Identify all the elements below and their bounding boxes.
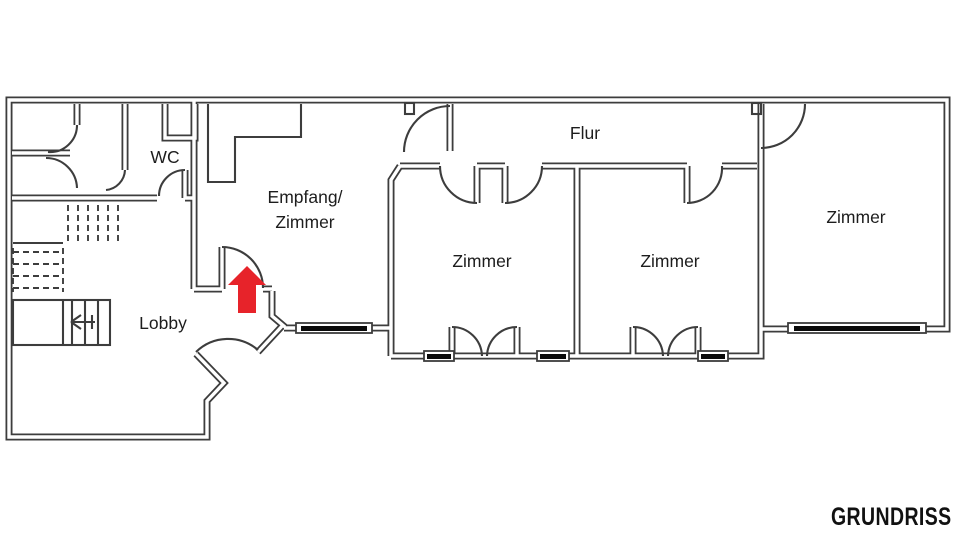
window bbox=[424, 351, 454, 361]
room-label-wc: WC bbox=[150, 147, 179, 167]
window bbox=[537, 351, 569, 361]
window bbox=[296, 323, 372, 333]
door-arc bbox=[687, 166, 722, 203]
room-label-empfang-line2: Zimmer bbox=[275, 212, 334, 232]
door-arc bbox=[106, 170, 125, 190]
stair-direction-arrow bbox=[71, 315, 95, 329]
window bbox=[788, 323, 926, 333]
door-arc bbox=[505, 166, 542, 203]
door-arc bbox=[440, 166, 477, 203]
door-arc bbox=[46, 158, 77, 188]
french-door-arc bbox=[668, 327, 698, 356]
door-arc bbox=[48, 125, 77, 152]
staircase bbox=[13, 300, 110, 345]
entrance-door-arc bbox=[196, 339, 258, 352]
dashed-stair-outline-layer bbox=[13, 205, 118, 292]
door-arc bbox=[404, 106, 450, 152]
room-label-zimmer-middle: Zimmer bbox=[640, 251, 699, 271]
room-label-empfang-line1: Empfang/ bbox=[268, 187, 343, 207]
window bbox=[698, 351, 728, 361]
door-jamb-notch bbox=[405, 103, 414, 114]
dashed-stair-lines-horizontal bbox=[13, 248, 63, 292]
floor-plan-page: WC Empfang/ Zimmer Flur Zimmer Zimmer Zi… bbox=[0, 0, 960, 540]
door-arc bbox=[761, 104, 805, 148]
french-door-arc bbox=[633, 327, 663, 356]
dashed-stair-lines-vertical bbox=[68, 205, 118, 242]
shaft-block bbox=[208, 104, 301, 182]
room-label-zimmer-right: Zimmer bbox=[826, 207, 885, 227]
grundriss-watermark: GRUNDRISS bbox=[831, 503, 952, 532]
french-door-arc bbox=[452, 327, 482, 356]
french-door-arc bbox=[487, 327, 517, 356]
room-label-flur: Flur bbox=[570, 123, 600, 143]
room-label-lobby: Lobby bbox=[139, 313, 187, 333]
room-label-zimmer-left: Zimmer bbox=[452, 251, 511, 271]
door-arc bbox=[159, 170, 185, 196]
floor-plan-drawing: WC Empfang/ Zimmer Flur Zimmer Zimmer Zi… bbox=[0, 0, 960, 540]
